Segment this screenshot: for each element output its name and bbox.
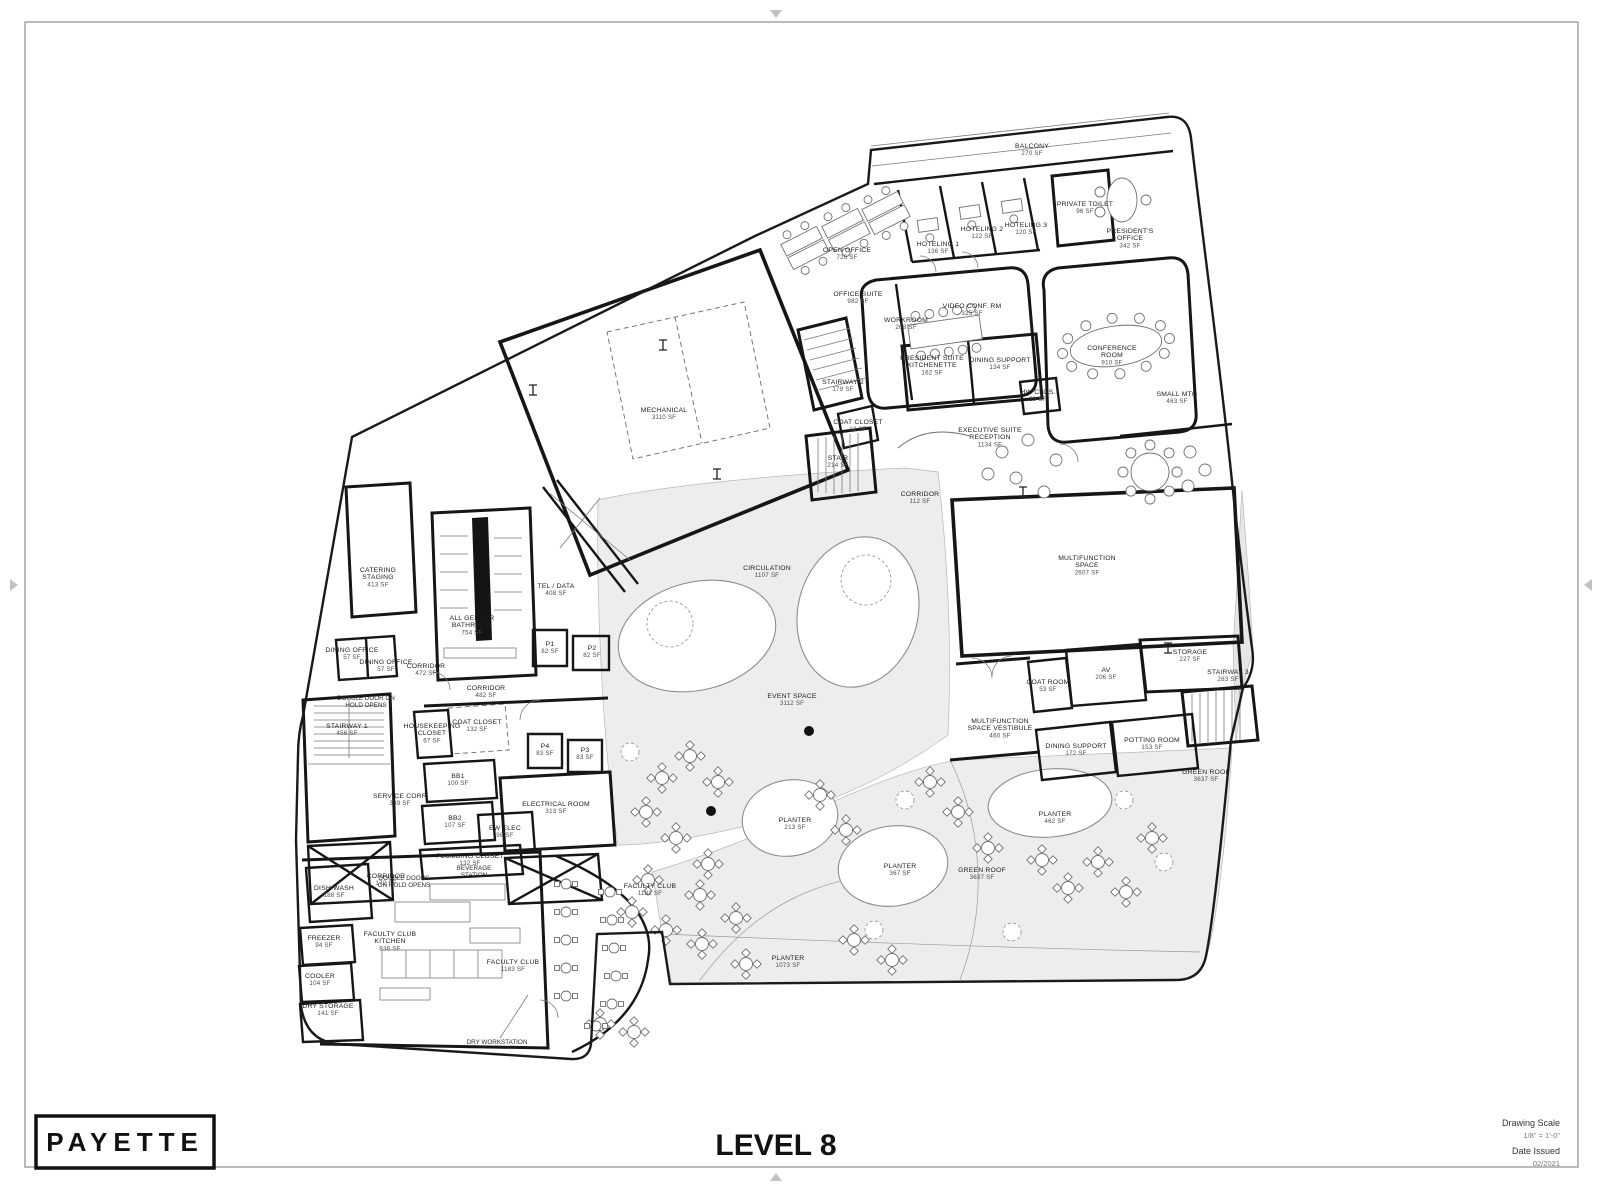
date-issued-label: Date Issued bbox=[1512, 1146, 1560, 1156]
room-label-cooler: COOLER104 SF bbox=[305, 973, 335, 987]
payette-logo: PAYETTE bbox=[46, 1127, 204, 1157]
sheet-title: LEVEL 8 bbox=[715, 1129, 836, 1162]
room-label-planter: PLANTER1073 SF bbox=[772, 955, 805, 969]
event-space-mound-ring bbox=[841, 555, 891, 605]
drawing-scale-value: 1/8" = 1'-0" bbox=[1523, 1131, 1560, 1140]
annotation-double-doors-on-hold-opens: DOUBLE DOORSON HOLD OPENS bbox=[378, 875, 430, 889]
keynote-marker bbox=[804, 726, 814, 736]
annotation-double-door-on-hold-opens: DOUBLE DOOR ONHOLD OPENS bbox=[337, 695, 395, 709]
drawing-scale-label: Drawing Scale bbox=[1502, 1118, 1560, 1128]
event-space-mound-ring bbox=[647, 601, 693, 647]
annotation-dry-workstation: DRY WORKSTATION bbox=[467, 1039, 528, 1046]
drawing-sheet: BALCONY270 SFOPEN OFFICE726 SFHOTELING 1… bbox=[0, 0, 1600, 1189]
room-label-stair: STAIR214 SF bbox=[827, 455, 848, 469]
date-issued-value: 02/2021 bbox=[1533, 1159, 1560, 1168]
keynote-marker bbox=[706, 806, 716, 816]
annotation-beverage-station: BEVERAGESTATION bbox=[457, 865, 492, 879]
